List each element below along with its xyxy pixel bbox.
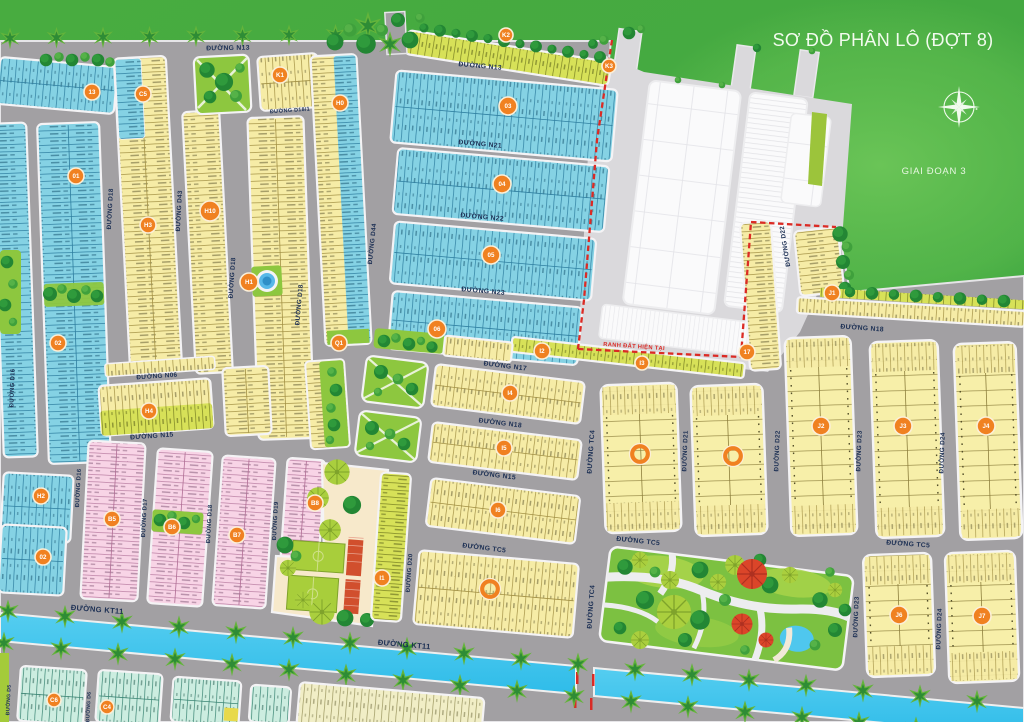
svg-text:I1: I1	[379, 575, 385, 582]
svg-text:C4: C4	[103, 704, 111, 711]
svg-text:06: 06	[434, 326, 441, 333]
svg-text:B5: B5	[108, 516, 116, 523]
svg-text:H1: H1	[245, 279, 253, 286]
svg-text:03: 03	[505, 103, 512, 110]
svg-text:02: 02	[40, 554, 47, 561]
svg-text:K2: K2	[502, 32, 510, 39]
svg-text:13: 13	[89, 89, 96, 96]
svg-text:GIAI ĐOẠN 3: GIAI ĐOẠN 3	[902, 166, 967, 177]
svg-text:B7: B7	[233, 532, 241, 539]
svg-text:I6: I6	[495, 507, 501, 514]
svg-text:J4: J4	[983, 423, 990, 430]
svg-text:04: 04	[499, 181, 506, 188]
svg-text:I4: I4	[507, 390, 513, 397]
svg-text:B8: B8	[311, 500, 319, 507]
svg-text:H10: H10	[204, 208, 216, 215]
svg-text:C5: C5	[139, 91, 147, 98]
svg-text:I5: I5	[501, 445, 507, 452]
svg-text:J1: J1	[829, 290, 836, 297]
svg-text:B6: B6	[168, 524, 176, 531]
svg-text:J6: J6	[896, 612, 903, 619]
svg-text:H2: H2	[37, 493, 45, 500]
svg-text:J2: J2	[818, 423, 825, 430]
svg-text:02: 02	[55, 340, 62, 347]
svg-text:C6: C6	[50, 697, 58, 704]
svg-text:H0: H0	[336, 100, 344, 107]
svg-text:01: 01	[73, 173, 80, 180]
svg-text:H4: H4	[145, 408, 153, 415]
svg-text:J7: J7	[979, 613, 986, 620]
svg-text:K3: K3	[605, 63, 613, 70]
svg-text:17: 17	[744, 349, 751, 356]
svg-text:I3: I3	[639, 360, 645, 367]
svg-text:I2: I2	[539, 348, 545, 355]
svg-text:SƠ ĐỒ PHÂN LÔ (ĐỢT 8): SƠ ĐỒ PHÂN LÔ (ĐỢT 8)	[773, 29, 994, 50]
svg-text:05: 05	[488, 252, 495, 259]
svg-text:K1: K1	[276, 72, 284, 79]
svg-text:J3: J3	[900, 423, 907, 430]
svg-text:H3: H3	[144, 222, 152, 229]
svg-text:Q1: Q1	[335, 340, 344, 347]
